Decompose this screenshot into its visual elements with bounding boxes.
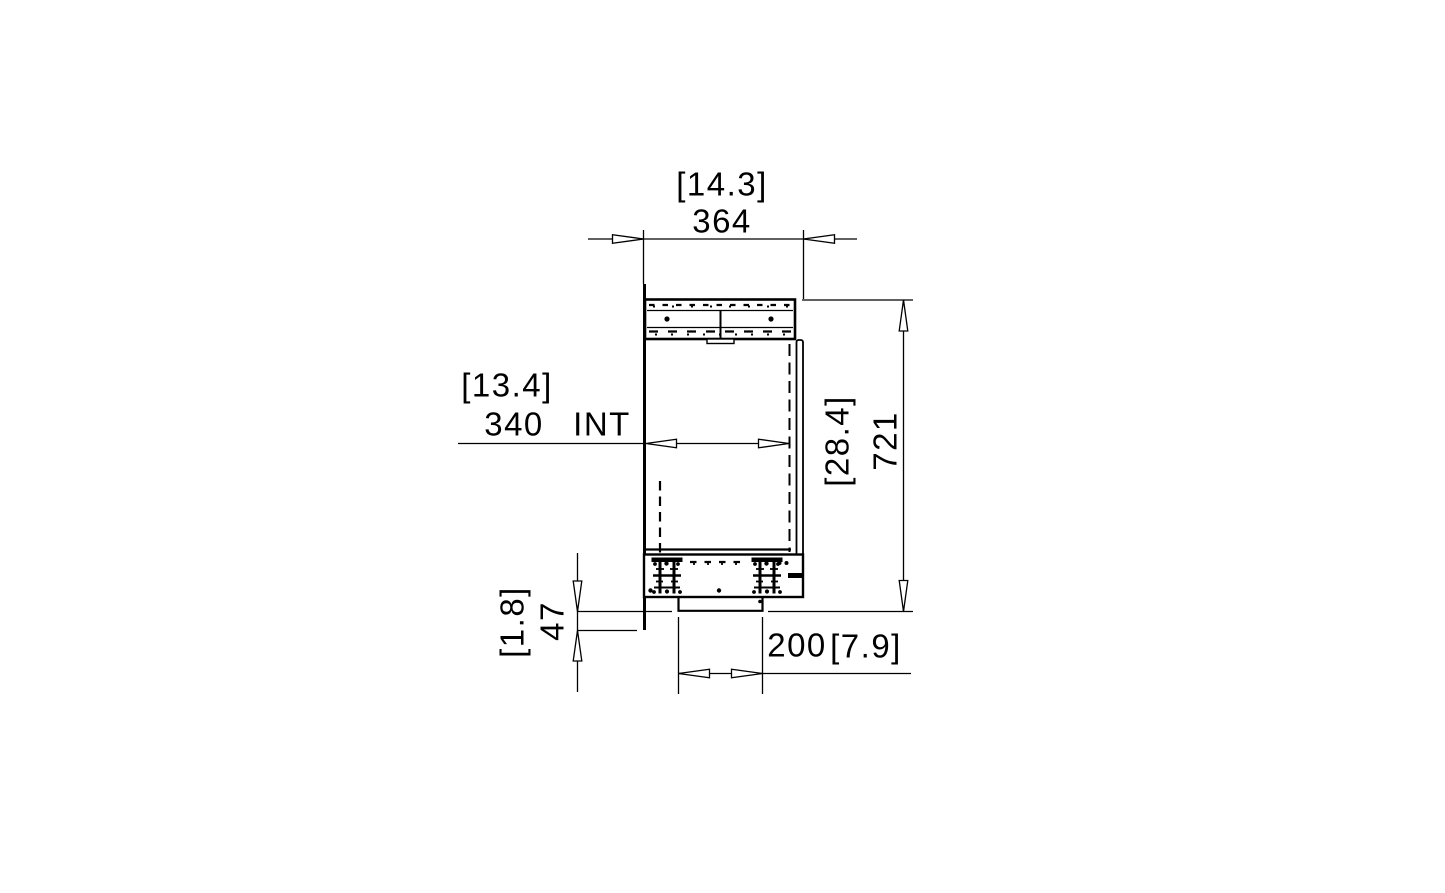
label-base-width-imperial: [7.9] [830,630,902,663]
firebox-body [644,284,803,630]
label-internal-width-metric: 340 [484,408,544,441]
label-base-width-metric: 200 [767,629,827,662]
label-internal-width-imperial: [13.4] [461,369,553,402]
bottom-spigot [679,598,763,611]
label-internal-width-suffix: INT [573,408,631,441]
label-base-drop-imperial: [1.8] [496,586,529,658]
label-overall-height-imperial: [28.4] [821,395,854,487]
label-overall-width-metric: 364 [692,205,752,238]
drawing-canvas: [14.3] 364 [13.4] 340 INT [28.4] 721 [1.… [0,0,1445,893]
label-overall-width-imperial: [14.3] [676,168,768,201]
label-overall-height-metric: 721 [869,411,902,471]
section-line-art [0,0,1445,893]
label-base-drop-metric: 47 [536,601,569,641]
dim-overall-width [588,230,857,299]
